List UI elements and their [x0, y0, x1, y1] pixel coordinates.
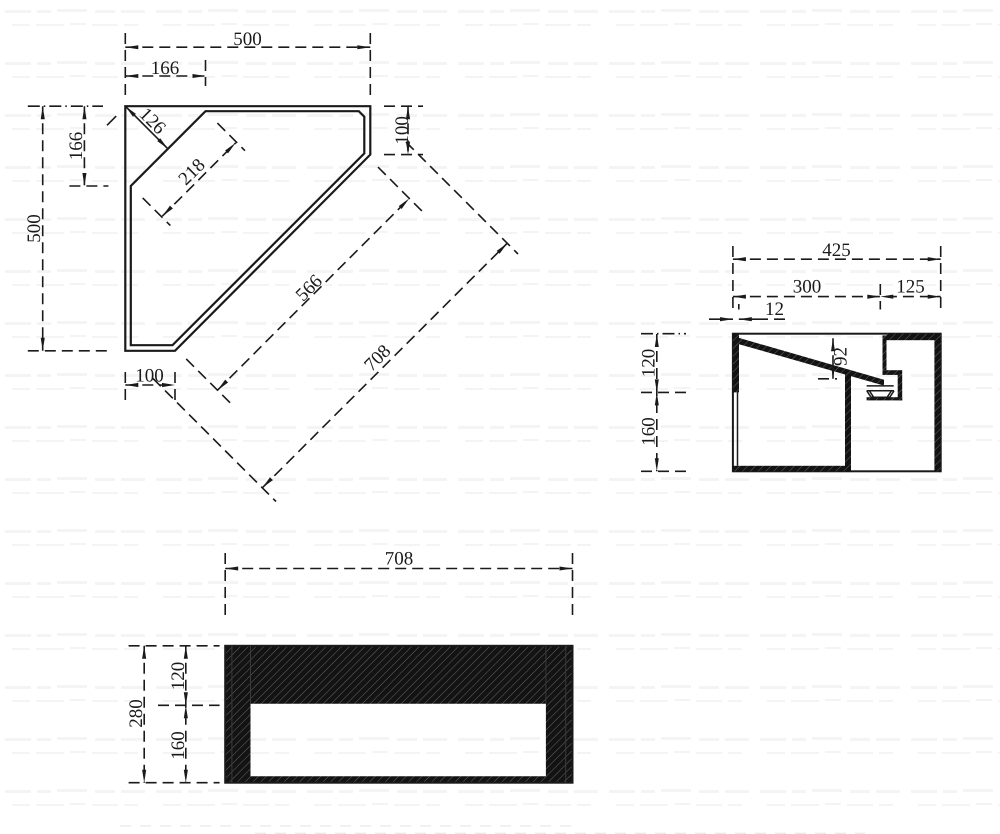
svg-text:280: 280 — [126, 699, 147, 728]
svg-text:100: 100 — [392, 116, 413, 145]
svg-text:100: 100 — [135, 366, 164, 387]
svg-text:120: 120 — [168, 662, 189, 691]
svg-text:12: 12 — [765, 299, 784, 320]
svg-text:160: 160 — [168, 731, 189, 760]
svg-text:120: 120 — [639, 349, 660, 378]
svg-text:160: 160 — [639, 417, 660, 446]
svg-text:500: 500 — [24, 214, 45, 243]
svg-text:166: 166 — [151, 58, 180, 79]
svg-text:166: 166 — [66, 132, 87, 161]
svg-text:500: 500 — [233, 29, 262, 50]
svg-text:300: 300 — [793, 276, 822, 297]
svg-text:92: 92 — [831, 347, 852, 366]
svg-text:708: 708 — [385, 549, 414, 570]
svg-text:125: 125 — [896, 276, 925, 297]
svg-text:425: 425 — [822, 240, 851, 261]
